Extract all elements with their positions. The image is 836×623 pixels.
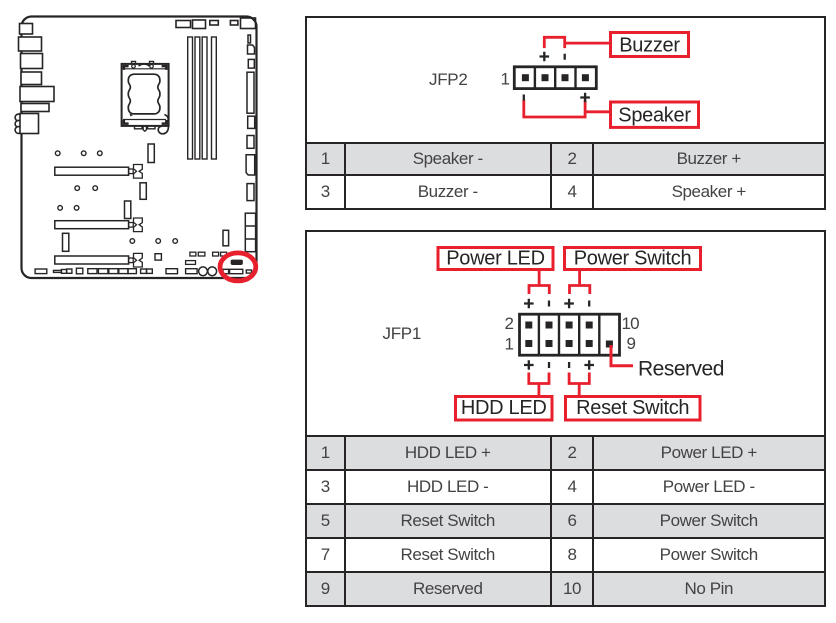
- svg-text:Power Switch: Power Switch: [574, 248, 692, 270]
- svg-text:10: 10: [622, 314, 640, 333]
- svg-text:Reset Switch: Reset Switch: [576, 397, 689, 419]
- svg-text:JFP2: JFP2: [429, 70, 467, 89]
- svg-text:Buzzer: Buzzer: [619, 34, 680, 56]
- svg-text:JFP1: JFP1: [383, 324, 421, 343]
- svg-text:Reserved: Reserved: [638, 358, 724, 381]
- svg-text:Speaker: Speaker: [618, 104, 691, 126]
- svg-text:9: 9: [627, 334, 636, 353]
- svg-text:Power LED: Power LED: [446, 248, 544, 270]
- svg-text:HDD LED: HDD LED: [461, 397, 547, 419]
- svg-text:1: 1: [501, 69, 510, 88]
- svg-text:1: 1: [504, 335, 513, 354]
- svg-text:2: 2: [504, 314, 513, 333]
